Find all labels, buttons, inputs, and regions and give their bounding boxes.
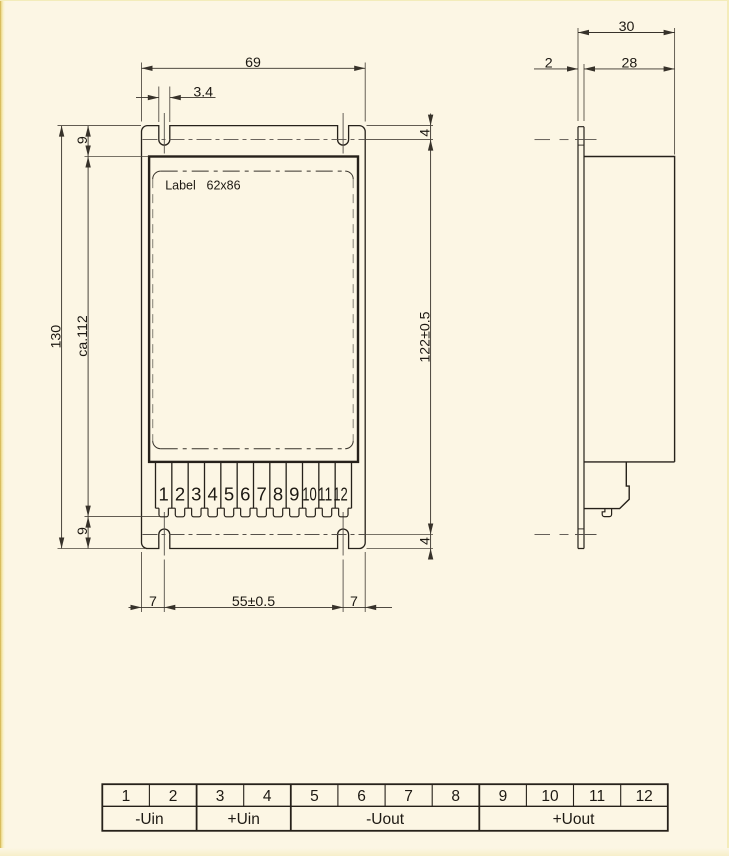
svg-text:ca.112: ca.112: [75, 315, 91, 357]
svg-text:-Uout: -Uout: [366, 811, 405, 828]
svg-text:9: 9: [499, 788, 508, 805]
svg-text:7: 7: [404, 788, 413, 805]
svg-text:130: 130: [48, 325, 64, 349]
svg-text:1: 1: [159, 484, 169, 505]
svg-text:-Uin: -Uin: [135, 811, 163, 828]
svg-text:12: 12: [636, 788, 653, 805]
svg-text:6: 6: [240, 484, 250, 505]
svg-text:+Uout: +Uout: [553, 811, 595, 828]
svg-text:12: 12: [333, 484, 348, 505]
svg-text:3: 3: [216, 788, 225, 805]
svg-text:Label: Label: [165, 178, 196, 192]
svg-text:2: 2: [545, 56, 553, 72]
svg-text:8: 8: [451, 788, 460, 805]
svg-text:7: 7: [257, 484, 267, 505]
svg-text:3: 3: [191, 484, 201, 505]
svg-text:10: 10: [302, 484, 317, 505]
svg-text:2: 2: [169, 788, 178, 805]
svg-text:1: 1: [122, 788, 131, 805]
svg-text:4: 4: [417, 537, 433, 545]
svg-text:+Uin: +Uin: [228, 811, 260, 828]
svg-text:9: 9: [75, 136, 91, 144]
svg-text:122±0.5: 122±0.5: [417, 311, 433, 362]
svg-text:28: 28: [622, 56, 638, 72]
svg-text:8: 8: [273, 484, 283, 505]
svg-text:2: 2: [175, 484, 185, 505]
svg-text:3.4: 3.4: [193, 85, 213, 101]
svg-text:10: 10: [541, 788, 559, 805]
svg-text:9: 9: [289, 484, 299, 505]
svg-text:69: 69: [245, 55, 261, 71]
svg-text:7: 7: [149, 594, 157, 610]
svg-text:55±0.5: 55±0.5: [232, 594, 275, 610]
svg-text:4: 4: [263, 788, 272, 805]
svg-text:5: 5: [310, 788, 319, 805]
svg-text:5: 5: [224, 484, 234, 505]
svg-text:7: 7: [350, 594, 358, 610]
svg-text:9: 9: [75, 527, 91, 535]
svg-text:11: 11: [589, 788, 605, 805]
svg-text:4: 4: [208, 484, 218, 505]
svg-text:11: 11: [318, 484, 333, 505]
svg-text:30: 30: [619, 19, 635, 35]
svg-text:62x86: 62x86: [207, 178, 241, 192]
svg-text:4: 4: [417, 129, 433, 137]
svg-text:6: 6: [357, 788, 366, 805]
